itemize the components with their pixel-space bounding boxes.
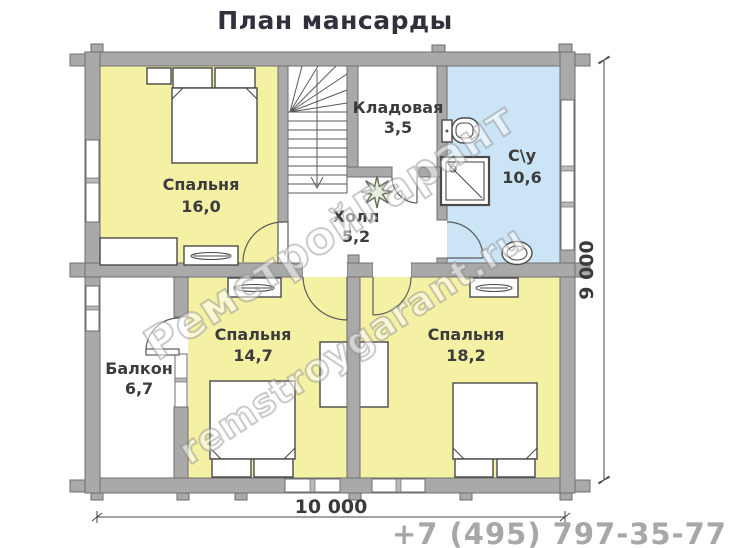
- page-title: План мансарды: [217, 6, 453, 35]
- room-label-storage: Кладовая: [353, 98, 444, 117]
- sink-icon: [442, 118, 479, 143]
- door-opening: [303, 263, 347, 277]
- room-area-hall: 5,2: [342, 227, 370, 246]
- wall-middle: [411, 263, 575, 277]
- window-mullion: [310, 479, 315, 492]
- tv-stand-icon: [470, 278, 518, 297]
- shower-icon: [441, 157, 489, 205]
- floor-plan-page: 10 000 9 000 План мансарды Спальня 16,0 …: [0, 0, 731, 548]
- floor-plan-drawing: 10 000 9 000 План мансарды Спальня 16,0 …: [0, 0, 731, 548]
- log-stub: [574, 54, 590, 66]
- wall-balcony-bedroom: [174, 407, 188, 478]
- dimension-width-label: 10 000: [295, 496, 368, 518]
- room-area-bedroom16: 16,0: [181, 197, 220, 216]
- log-stub: [70, 54, 86, 66]
- window-bathroom: [561, 100, 574, 250]
- wall-bedroom16-stairs: [278, 66, 288, 222]
- room-label-bedroom182: Спальня: [428, 325, 505, 344]
- room-label-bathroom: С\у: [508, 146, 537, 165]
- phone-number: +7 (495) 797-35-77: [392, 517, 727, 548]
- desk-icon: [100, 238, 177, 265]
- room-area-storage: 3,5: [384, 118, 412, 137]
- window-mullion: [86, 178, 99, 183]
- wall-balcony-bedroom: [174, 277, 188, 317]
- wall-bathroom-left: [437, 258, 447, 263]
- window-mullion: [396, 479, 401, 492]
- dimension-height-line: [598, 56, 610, 484]
- log-stub: [574, 480, 590, 492]
- room-area-bedroom147: 14,7: [233, 346, 272, 365]
- door-opening: [373, 263, 411, 277]
- wall-bedrooms-divider: [347, 277, 360, 478]
- door-leaf-balcony: [146, 349, 179, 355]
- log-stub: [70, 263, 86, 277]
- window-mullion: [175, 378, 187, 382]
- room-label-bedroom147: Спальня: [215, 325, 292, 344]
- window-mullion: [561, 166, 574, 171]
- plant-icon: [361, 176, 393, 208]
- dimension-height-label: 9 000: [576, 240, 598, 300]
- toilet-icon: [502, 242, 532, 265]
- room-area-bathroom: 10,6: [502, 168, 541, 187]
- log-stub: [70, 480, 86, 492]
- wall-exterior-top: [85, 52, 575, 66]
- wall-storage-bottom: [347, 167, 392, 177]
- window-mullion: [86, 306, 99, 310]
- wall-stairs-storage: [347, 66, 358, 177]
- dimension-height: 9 000: [576, 56, 610, 484]
- door-leaf-bedroom16: [278, 222, 288, 263]
- wall-middle: [347, 263, 373, 277]
- tv-stand-icon: [184, 246, 238, 265]
- room-label-bedroom16: Спальня: [163, 175, 240, 194]
- room-area-balcony: 6,7: [125, 379, 153, 398]
- tv-stand-icon: [228, 278, 281, 297]
- window-mullion: [561, 202, 574, 207]
- room-label-balcony: Балкон: [105, 359, 173, 378]
- room-label-hall: Холл: [333, 207, 380, 226]
- room-area-bedroom182: 18,2: [446, 346, 485, 365]
